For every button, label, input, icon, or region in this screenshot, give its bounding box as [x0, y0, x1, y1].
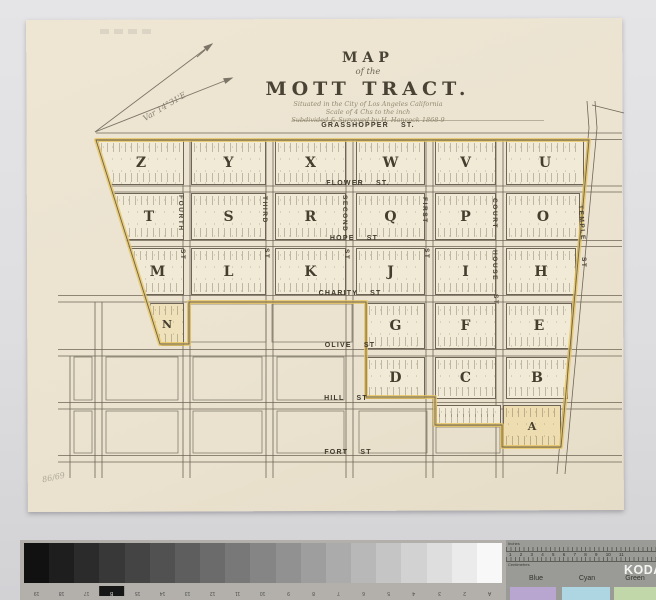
grayscale-step-labels: 1918 17B 1514 1312 1110 98 76 54 32 A	[24, 586, 502, 596]
map-title-block: MAP of the MOTT TRACT. Situated in the C…	[238, 50, 498, 124]
kodak-color-control-strip: Inches 1 2 3 4 5 6 7 8 9 10 11 Centimetr…	[506, 540, 656, 600]
street-label-olive: OLIVE ST	[306, 342, 394, 349]
title-word-map: MAP	[238, 50, 498, 66]
street-label-fort: FORT ST	[308, 449, 388, 456]
north-arrow-icon	[95, 44, 232, 132]
inches-label: Inches	[508, 541, 520, 546]
centimetres-label: Centimetres	[508, 562, 530, 567]
street-label-flower: FLOWER ST.	[316, 180, 400, 187]
street-label-second-st: ST	[343, 249, 350, 261]
blue-color-patch	[510, 587, 556, 600]
map-subtitle-scale: Scale of 4 Chs to the inch	[238, 108, 498, 116]
map-title: MOTT TRACT.	[238, 78, 498, 100]
street-label-court-house-st: ST	[492, 294, 499, 306]
street-label-fourth-st: ST	[179, 249, 186, 261]
green-patch-label: Green	[614, 575, 656, 582]
cyan-patch-label: Cyan	[564, 575, 610, 582]
grayscale-steps	[24, 543, 502, 583]
street-label-fourth: FOURTH	[177, 195, 184, 232]
street-label-grasshopper: GRASSHOPPER ST.	[318, 122, 418, 129]
grayscale-calibration-bar: 1918 17B 1514 1312 1110 98 76 54 32 A	[20, 540, 506, 600]
title-rule-line	[292, 120, 544, 121]
street-label-first-st: ST	[423, 248, 430, 260]
cyan-color-patch	[562, 587, 610, 600]
street-label-third-st: ST	[263, 248, 270, 260]
cm-numbers: 1 2 3 4 5 6 7 8 9 10 11	[509, 552, 624, 557]
street-label-temple-st: ST	[580, 257, 587, 269]
map-subtitle-location: Situated in the City of Los Angeles Cali…	[238, 100, 498, 108]
blue-patch-label: Blue	[514, 575, 558, 582]
street-label-charity: CHARITY ST	[306, 290, 394, 297]
street-label-first: FIRST	[421, 197, 428, 224]
street-label-second: SECOND	[341, 195, 348, 232]
scanned-map-image: Z Y X W V U T S R Q P O M L K J I H N G …	[0, 0, 656, 600]
green-color-patch	[614, 587, 656, 600]
title-of-the: of the	[238, 67, 498, 77]
street-label-hope: HOPE ST	[318, 235, 390, 242]
street-label-third: THIRD	[261, 196, 268, 224]
street-label-house: HOUSE	[491, 250, 498, 281]
street-label-court: COURT	[491, 198, 498, 229]
street-label-hill: HILL ST	[306, 395, 386, 402]
